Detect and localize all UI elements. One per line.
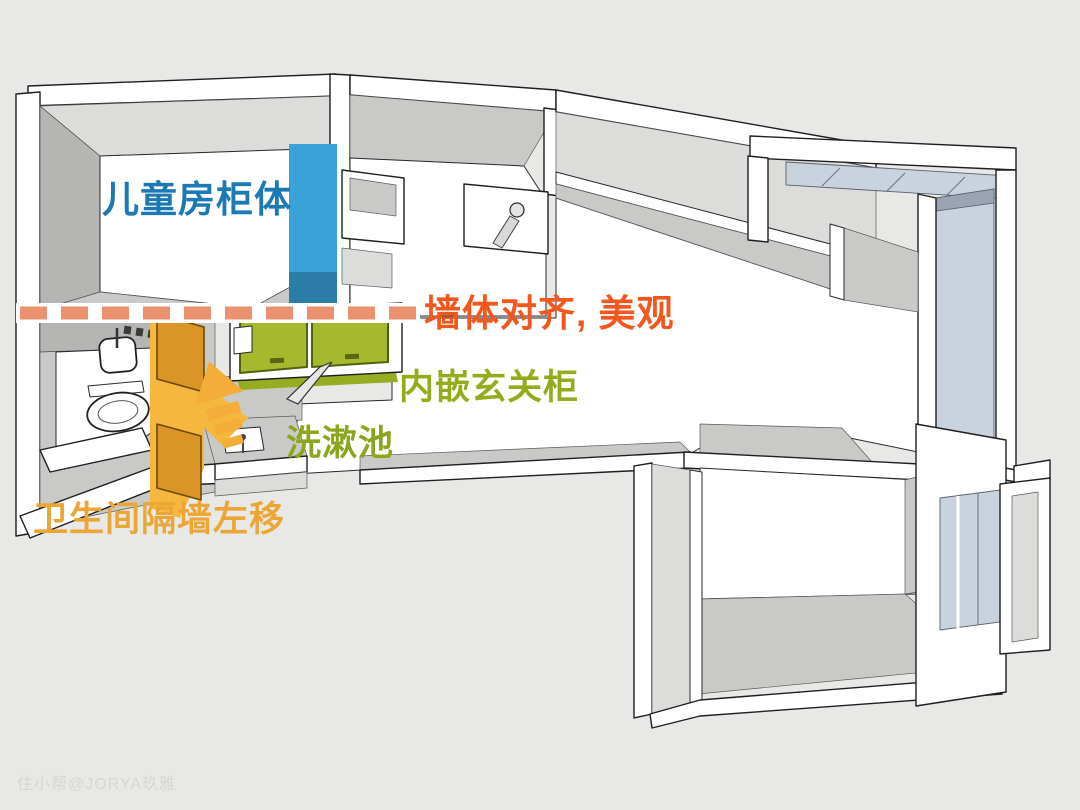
balcony-glazing-side (936, 189, 994, 470)
alignment-dashed-line (16, 303, 420, 323)
label-washbasin: 洗漱池 (286, 424, 394, 463)
outer-window-frame (1000, 460, 1050, 654)
entry-room (330, 74, 560, 316)
label-bathroom-partition: 卫生间隔墙左移 (33, 500, 285, 539)
bedroom-window (940, 490, 1000, 630)
floorplan-canvas: 儿童房柜体 墙体对齐, 美观 内嵌玄关柜 洗漱池 卫生间隔墙左移 住小帮@JOR… (0, 0, 1080, 810)
watermark: 住小帮@JORYA玖雅 (17, 775, 176, 793)
label-wall-align: 墙体对齐, 美观 (424, 293, 675, 334)
label-entry-cabinet: 内嵌玄关柜 (399, 368, 579, 407)
entry-door (464, 184, 548, 254)
label-children-cabinet: 儿童房柜体 (102, 178, 292, 220)
floorplan-render: 儿童房柜体 墙体对齐, 美观 内嵌玄关柜 洗漱池 卫生间隔墙左移 住小帮@JOR… (0, 0, 1080, 810)
children-room-cabinet-highlight (289, 144, 337, 316)
